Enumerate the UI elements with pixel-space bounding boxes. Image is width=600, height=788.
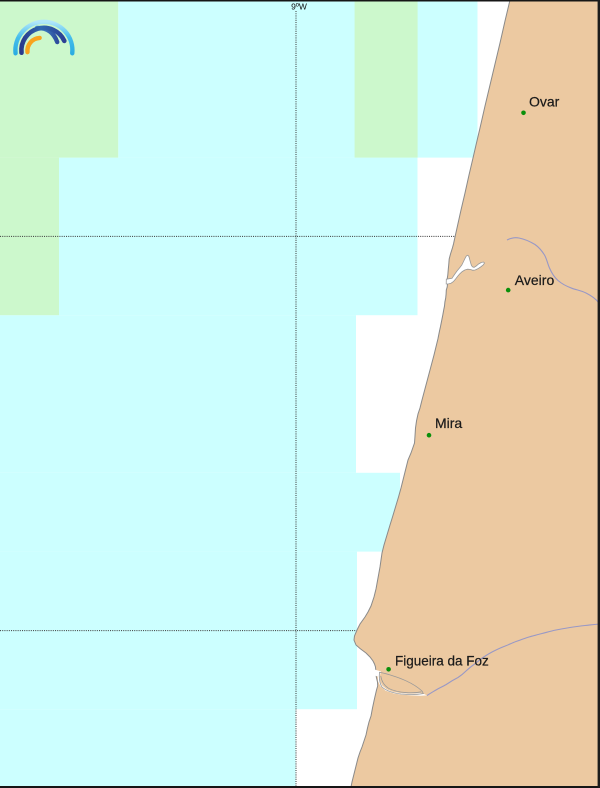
- svg-text:Figueira da Foz: Figueira da Foz: [395, 654, 489, 669]
- svg-text:Ovar: Ovar: [529, 94, 560, 110]
- svg-text:9ºW: 9ºW: [291, 2, 307, 12]
- svg-text:Mira: Mira: [435, 415, 462, 431]
- svg-text:Aveiro: Aveiro: [515, 272, 555, 288]
